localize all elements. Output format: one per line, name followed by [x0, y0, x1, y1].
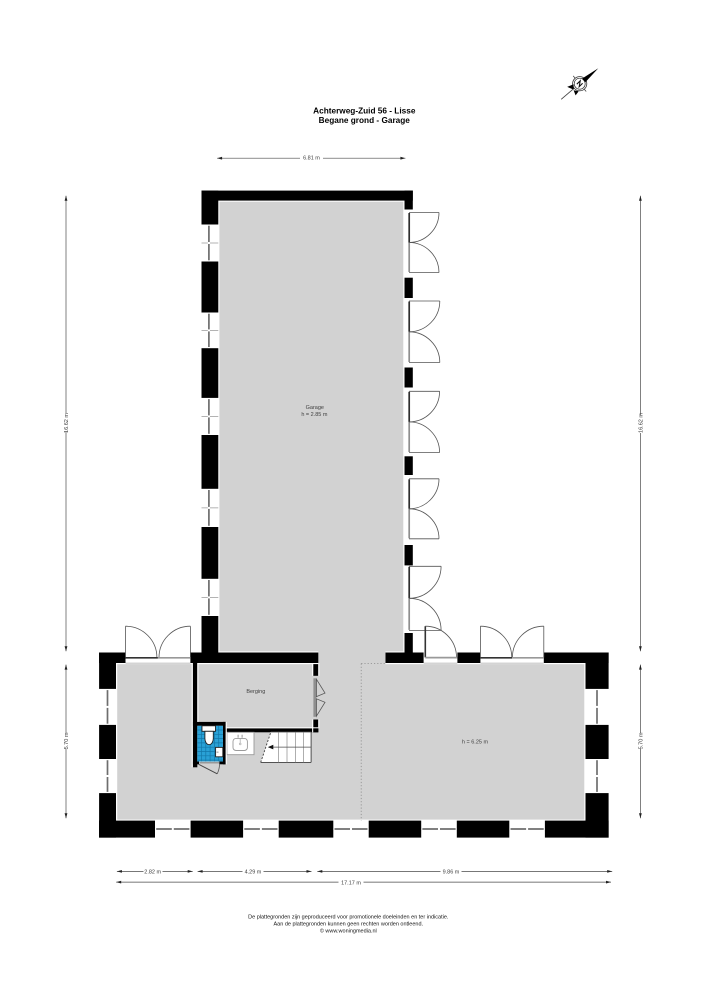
svg-text:Begane grond - Garage: Begane grond - Garage [319, 116, 411, 125]
svg-text:16.62 m: 16.62 m [64, 413, 70, 433]
svg-text:De plattegronden zijn geproduc: De plattegronden zijn geproduceerd voor … [248, 914, 449, 920]
svg-text:5.70 m: 5.70 m [64, 732, 70, 749]
svg-text:2.82 m: 2.82 m [144, 869, 161, 875]
svg-text:Berging: Berging [246, 689, 265, 695]
svg-text:4.29 m: 4.29 m [245, 869, 262, 875]
svg-text:h = 6.25 m: h = 6.25 m [462, 739, 489, 745]
svg-text:16.62 m: 16.62 m [638, 413, 644, 433]
svg-text:6.81 m: 6.81 m [303, 156, 320, 162]
svg-text:9.86 m: 9.86 m [443, 869, 460, 875]
svg-text:5.70 m: 5.70 m [638, 732, 644, 749]
svg-text:h = 2.85 m: h = 2.85 m [301, 412, 328, 418]
svg-text:Garage: Garage [306, 405, 324, 411]
svg-text:© www.woningmedia.nl: © www.woningmedia.nl [320, 927, 377, 934]
svg-text:Achterweg-Zuid 56 - Lisse: Achterweg-Zuid 56 - Lisse [313, 107, 416, 116]
svg-text:Aan de plattegronden kunnen ge: Aan de plattegronden kunnen geen rechten… [274, 921, 424, 927]
svg-text:17.17 m: 17.17 m [341, 880, 361, 886]
